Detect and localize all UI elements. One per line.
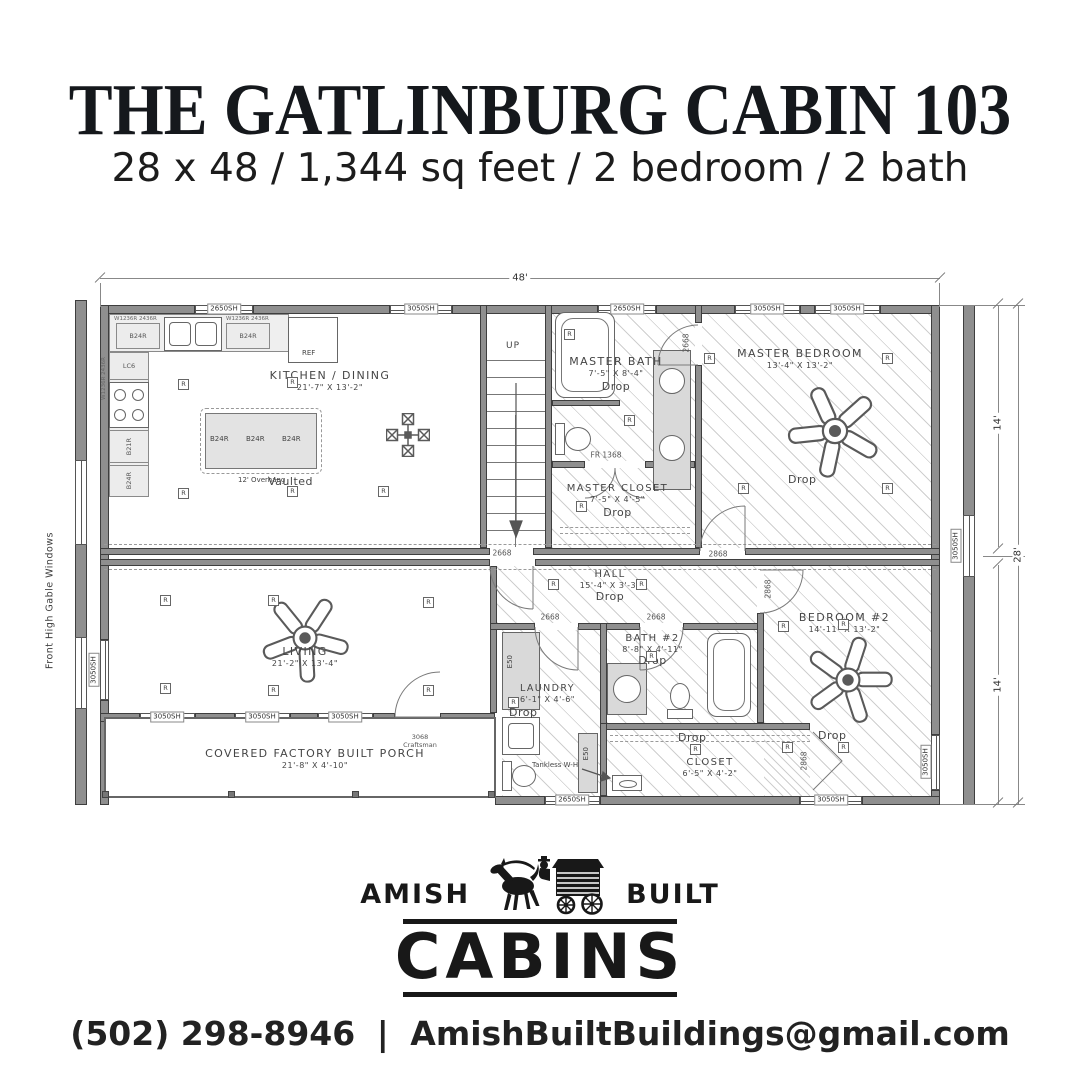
receptacle-symbol: R [423,597,434,608]
tankless-label: Tankless W-H [532,761,578,769]
door-label: 2868 [764,579,773,598]
door-arc [700,506,745,551]
room-master-bedroom: MASTER BEDROOM13'-4" X 13'-2" [695,347,905,370]
phone-number: (502) 298-8946 [70,1014,355,1053]
door-arc [535,627,578,670]
email-address: AmishBuiltBuildings@gmail.com [410,1014,1009,1053]
receptacle-symbol: R [646,651,657,662]
receptacle-symbol: R [882,483,893,494]
receptacle-symbol: R [548,579,559,590]
receptacle-symbol: R [268,595,279,606]
receptacle-symbol: R [160,595,171,606]
receptacle-symbol: R [178,379,189,390]
page-subtitle: 28 x 48 / 1,344 sq feet / 2 bedroom / 2 … [0,146,1080,191]
receptacle-symbol: R [287,486,298,497]
receptacle-symbol: R [778,621,789,632]
closet-door-label: FR 1368 [591,451,622,460]
window-label: 3050SH [830,304,864,315]
room-master-closet: MASTER CLOSET7'-5" X 4'-5"Drop [546,483,689,519]
receptacle-symbol: R [178,488,189,499]
room-kitchen-dining: KITCHEN / DINING21'-7" X 13'-2" [240,369,420,392]
room-closet2: CLOSET6'-5" X 4'-2" [640,757,780,778]
island-cabinet-label: B24R [282,435,301,443]
refrigerator-label: REF [302,349,315,357]
receptacle-symbol: R [287,377,298,388]
contact-separator: | [377,1014,389,1053]
closet2-drop: Drop [678,731,706,744]
receptacle-symbol: R [882,353,893,364]
window-label: 3050SH [328,712,362,723]
page: THE GATLINBURG CABIN 103 28 x 48 / 1,344… [0,0,1080,1080]
room-hall: HALL15'-4" X 3'-3"Drop [545,569,675,603]
receptacle-symbol: R [624,415,635,426]
door-label: 2668 [682,333,691,352]
floor-plan: 2650SH 3050SH 2650SH 3050SH 3050SH 3050S… [40,265,1040,840]
receptacle-symbol: R [738,483,749,494]
stairs-arrowhead [510,521,522,537]
window-label: 3050SH [750,304,784,315]
window-label: 2650SH [610,304,644,315]
room-master-bath: MASTER BATH7'-5" X 8'-4"Drop [546,355,686,393]
receptacle-symbol: R [690,744,701,755]
logo-brand-cabins: CABINS [395,924,685,991]
receptacle-symbol: R [782,742,793,753]
window-label: 3050SH [921,745,932,779]
receptacle-symbol: R [576,501,587,512]
wall-cabinet-note: W1236R 2436R [226,316,269,322]
company-logo: AMISH [0,854,1080,997]
utility-cabinet-label: E50 [582,747,590,760]
window-label: 3050SH [951,529,962,563]
receptacle-symbol: R [268,685,279,696]
receptacle-symbol: R [423,685,434,696]
door-label: 2668 [492,549,511,558]
wall-cabinet-note: W1236R 2436R [101,357,107,400]
door-label: 2868 [800,751,809,770]
wall-cabinet-note: W1236R 2436R [114,316,157,322]
logo-word-built: BUILT [626,879,720,918]
washer-dryer-label: E50 [506,655,514,668]
door-arc [490,566,533,609]
island-overhang-label: 12' Overhang [238,476,285,484]
window-label: 3050SH [150,712,184,723]
door-label: 2668 [540,613,559,622]
receptacle-symbol: R [704,353,715,364]
page-title: THE GATLINBURG CABIN 103 [54,68,1026,152]
room-living: LIVING21'-2" X 13'-4" [230,645,380,668]
receptacle-symbol: R [564,329,575,340]
window-label: 2650SH [555,795,589,806]
door-label: 2868 [708,550,727,559]
stairs-up-label: UP [506,341,520,351]
receptacle-symbol: R [508,697,519,708]
logo-word-amish: AMISH [360,879,470,918]
window-label: 3050SH [814,795,848,806]
receptacle-symbol: R [378,486,389,497]
receptacle-symbol: R [838,619,849,630]
room-porch: COVERED FACTORY BUILT PORCH21'-8" X 4'-1… [135,747,495,770]
receptacle-symbol: R [160,683,171,694]
window-label: 2650SH [207,304,241,315]
bedroom2-drop: Drop [818,729,846,742]
window-label: 3050SH [404,304,438,315]
tankless-arrowhead [601,772,610,781]
island-cabinet-label: B24R [246,435,265,443]
door-label: 2668 [646,613,665,622]
window-label: 3050SH [245,712,279,723]
receptacle-symbol: R [636,579,647,590]
horse-and-wagon-icon [482,856,614,918]
receptacle-symbol: R [838,742,849,753]
window-label: 3050SH [89,653,100,687]
logo-divider [403,992,677,997]
island-cabinet-label: B24R [210,435,229,443]
contact-line: (502) 298-8946 | AmishBuiltBuildings@gma… [0,1014,1080,1053]
entry-door-label: 3068 Craftsman [397,733,443,749]
master-bedroom-drop: Drop [788,473,816,486]
